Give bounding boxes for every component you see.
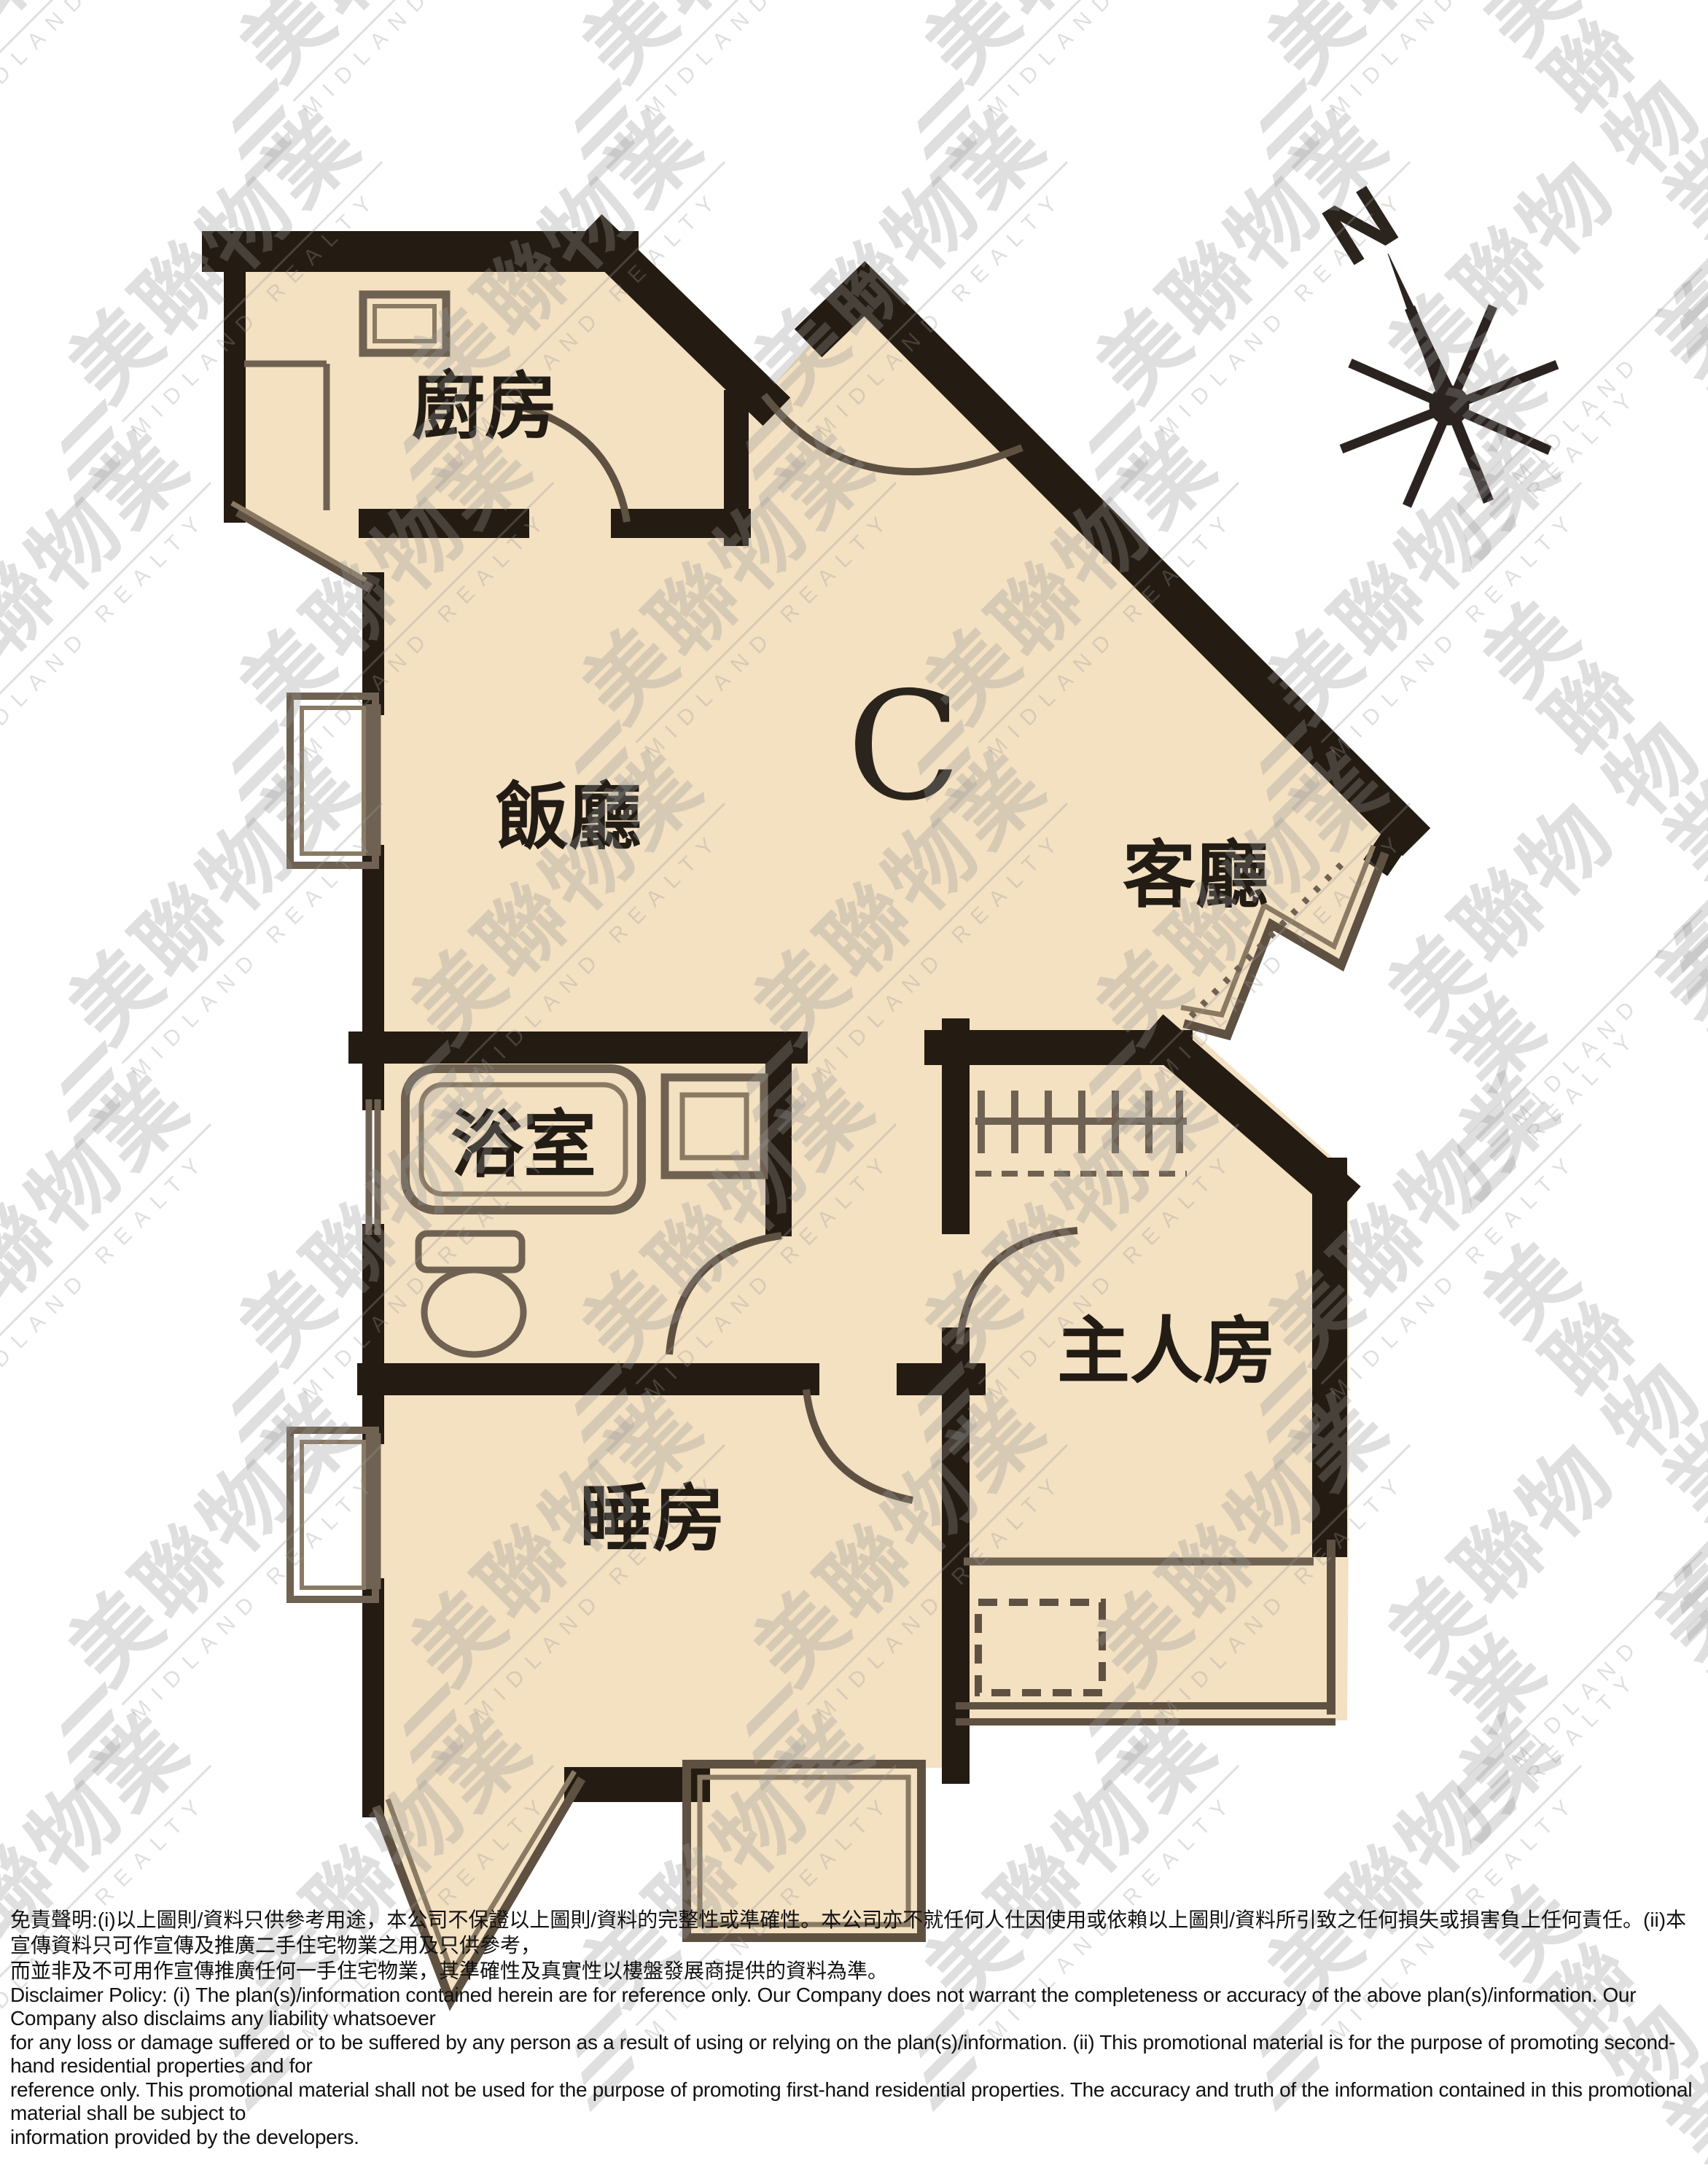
disclaimer-en-line4: information provided by the developers. <box>10 2126 1701 2150</box>
disclaimer-en-line1: Disclaimer Policy: (i) The plan(s)/infor… <box>10 1984 1701 2031</box>
disclaimer-en-line2: for any loss or damage suffered or to be… <box>10 2031 1701 2078</box>
window-box-dining-inner <box>302 708 364 854</box>
floor-plan-drawing: N 廚房 飯廳 C 客廳 浴室 主人房 睡房 <box>0 0 1708 2168</box>
label-bedroom: 睡房 <box>580 1478 725 1560</box>
floor-plan-page: N 廚房 飯廳 C 客廳 浴室 主人房 睡房 美聯物業 MIDLAND REAL… <box>0 0 1708 2168</box>
compass-north-label: N <box>1308 168 1413 284</box>
compass-hub <box>1430 386 1469 425</box>
label-bathroom: 浴室 <box>451 1104 596 1186</box>
label-unit: C <box>847 660 962 834</box>
wall-right-corner-stub <box>1384 828 1403 856</box>
label-living: 客廳 <box>1123 835 1268 916</box>
compass: N <box>1308 168 1557 506</box>
disclaimer-footer: 免責聲明:(i)以上圖則/資料只供參考用途，本公司不保證以上圖則/資料的完整性或… <box>10 1907 1701 2150</box>
label-kitchen: 廚房 <box>412 366 558 448</box>
label-master-bedroom: 主人房 <box>1057 1311 1276 1392</box>
window-box-bedroom-inner <box>302 1442 364 1588</box>
disclaimer-en-line3: reference only. This promotional materia… <box>10 2078 1701 2126</box>
window-bathroom-left <box>369 1099 378 1235</box>
disclaimer-zh-line1: 免責聲明:(i)以上圖則/資料只供參考用途，本公司不保證以上圖則/資料的完整性或… <box>10 1907 1701 1958</box>
label-dining: 飯廳 <box>496 776 642 858</box>
disclaimer-zh-line2: 而並非及不可用作宣傳推廣任何一手住宅物業，其準確性及真實性以樓盤發展商提供的資料… <box>10 1958 1701 1984</box>
